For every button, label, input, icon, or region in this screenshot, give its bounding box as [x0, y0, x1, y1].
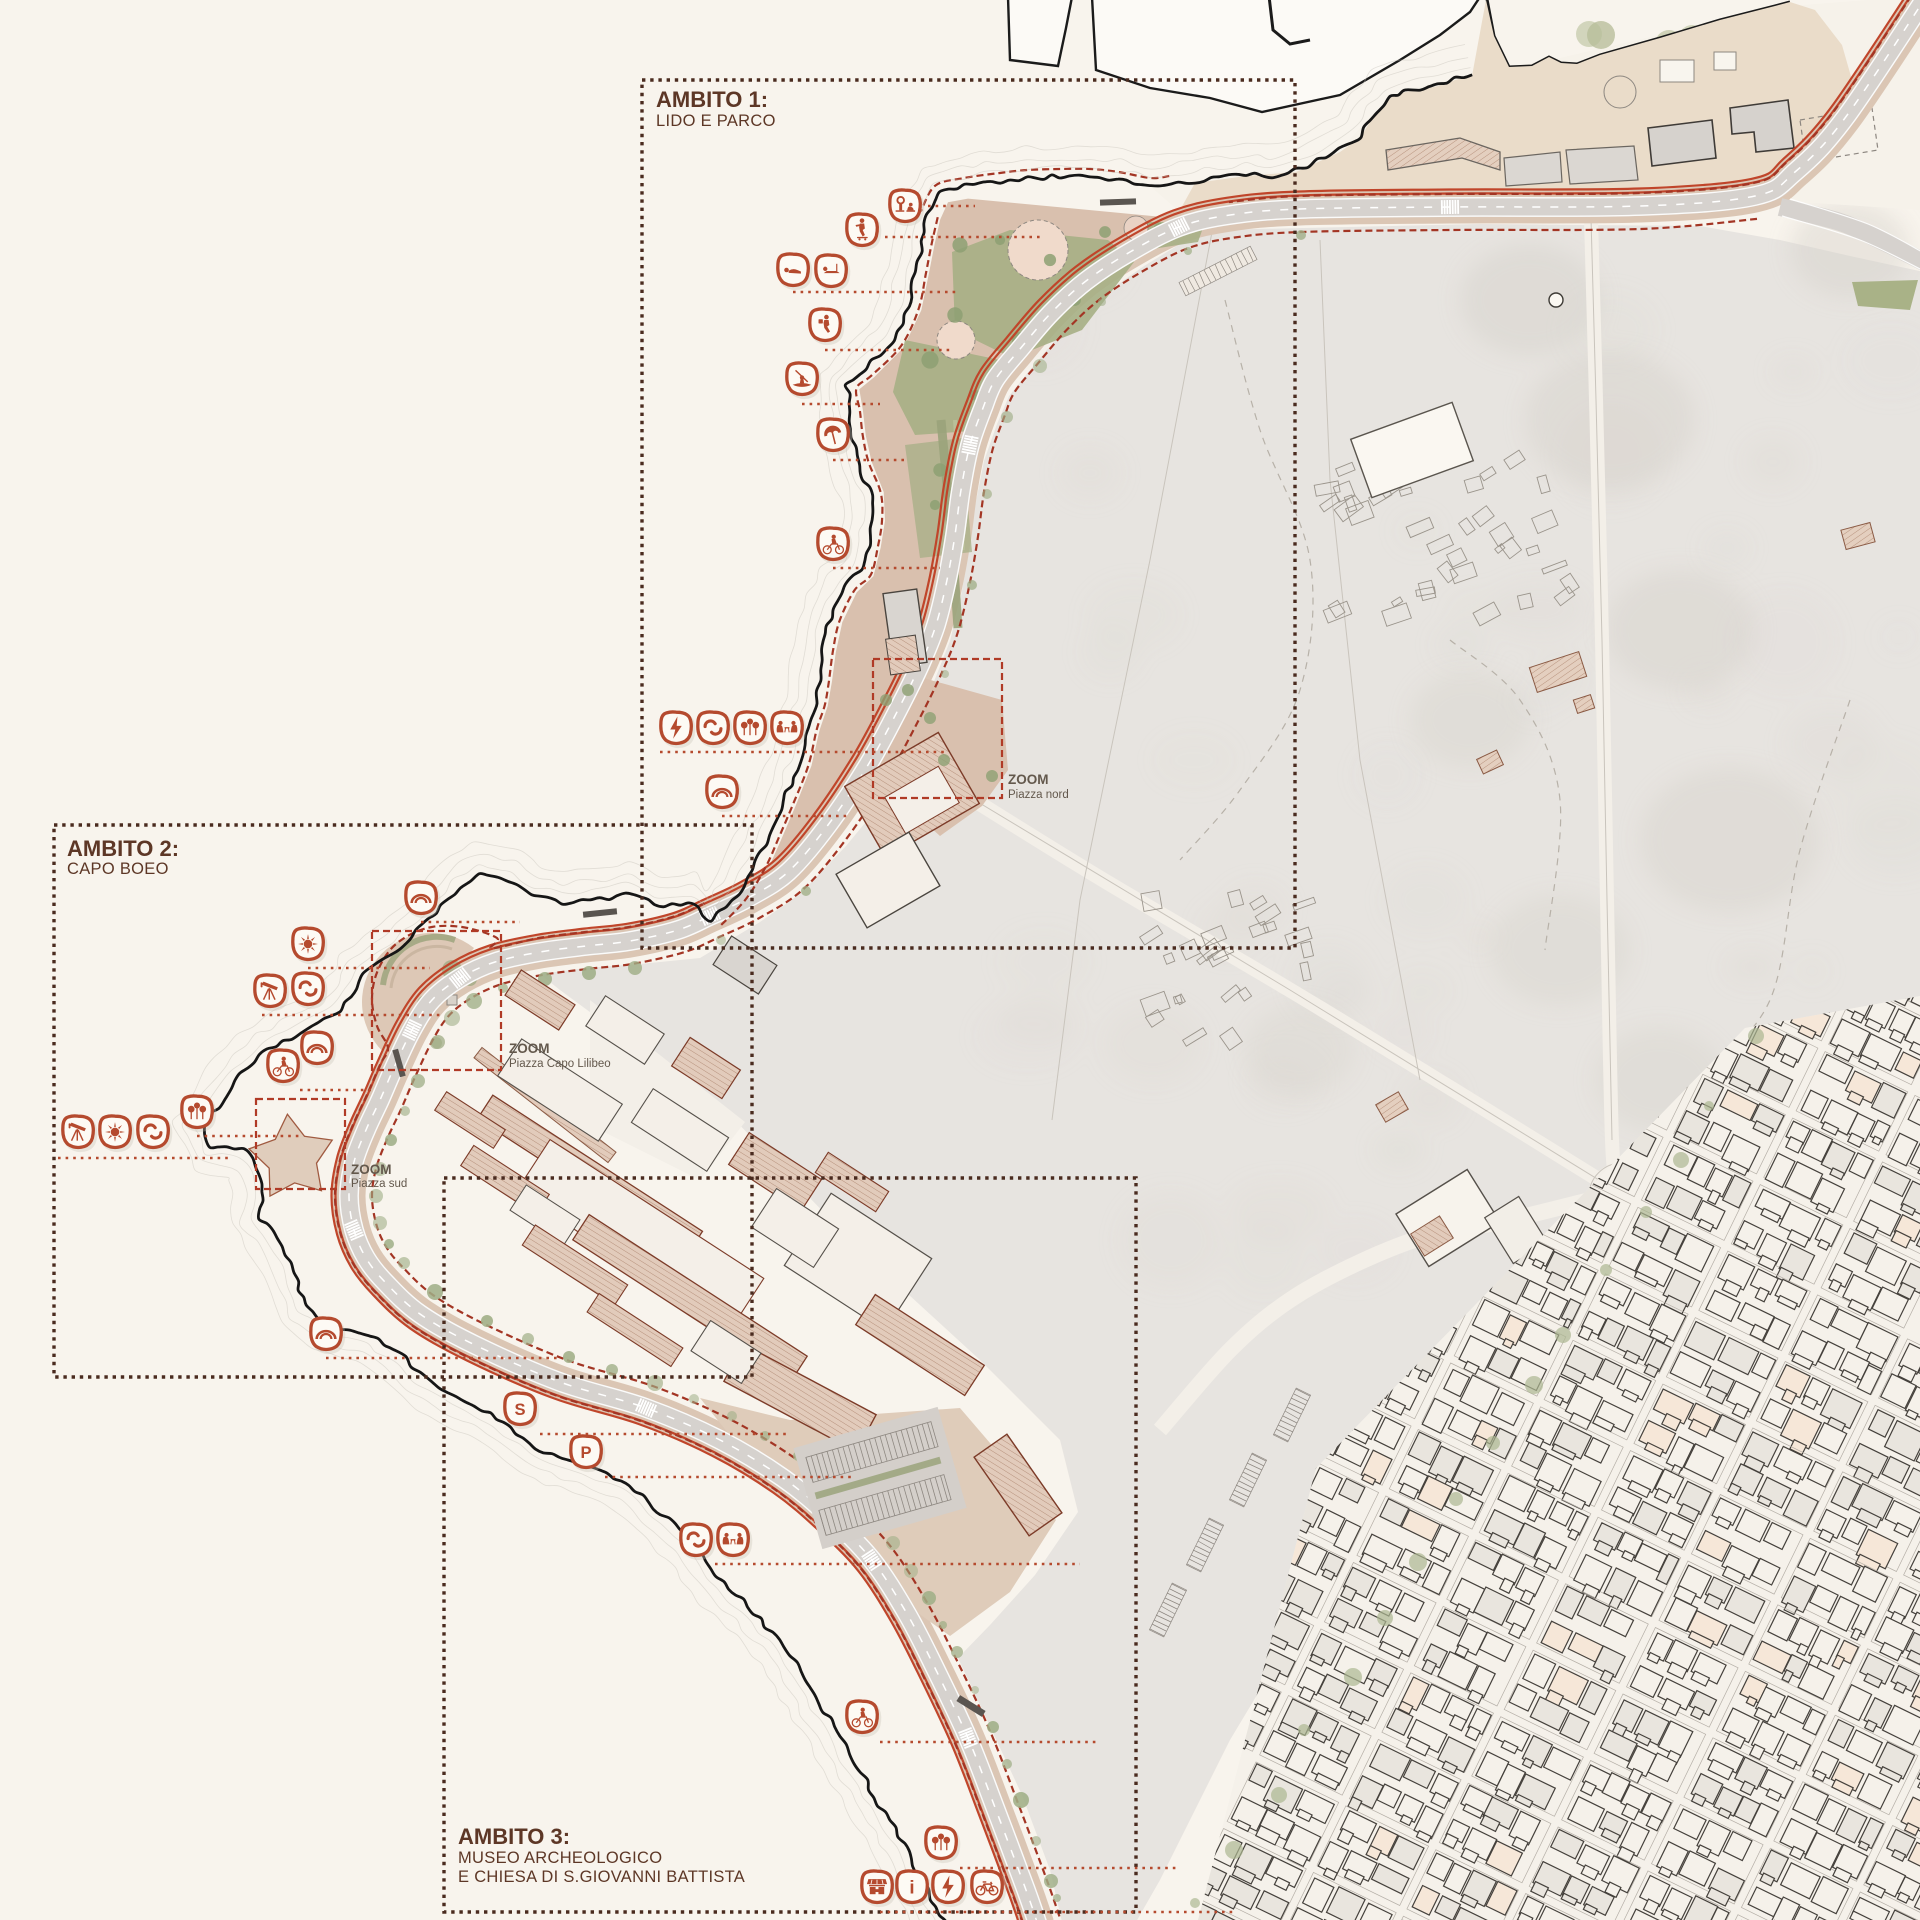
svg-text:AMBITO 3:: AMBITO 3: [458, 1824, 570, 1849]
svg-text:ZOOM: ZOOM [1008, 772, 1049, 787]
svg-text:AMBITO 1:: AMBITO 1: [656, 87, 768, 112]
svg-text:MUSEO ARCHEOLOGICO: MUSEO ARCHEOLOGICO [458, 1849, 662, 1867]
svg-text:Piazza sud: Piazza sud [351, 1178, 407, 1190]
svg-text:AMBITO 2:: AMBITO 2: [67, 836, 179, 861]
svg-text:ZOOM: ZOOM [509, 1041, 550, 1056]
svg-text:CAPO BOEO: CAPO BOEO [67, 860, 169, 878]
svg-text:i: i [909, 1876, 914, 1897]
svg-text:P: P [580, 1443, 591, 1462]
svg-text:Piazza nord: Piazza nord [1008, 789, 1069, 801]
svg-text:S: S [514, 1400, 525, 1419]
svg-text:Piazza Capo Lilibeo: Piazza Capo Lilibeo [509, 1058, 611, 1070]
svg-text:E CHIESA DI S.GIOVANNI BATTIST: E CHIESA DI S.GIOVANNI BATTISTA [458, 1868, 745, 1886]
svg-text:ZOOM: ZOOM [351, 1162, 392, 1177]
svg-text:LIDO E PARCO: LIDO E PARCO [656, 112, 776, 130]
